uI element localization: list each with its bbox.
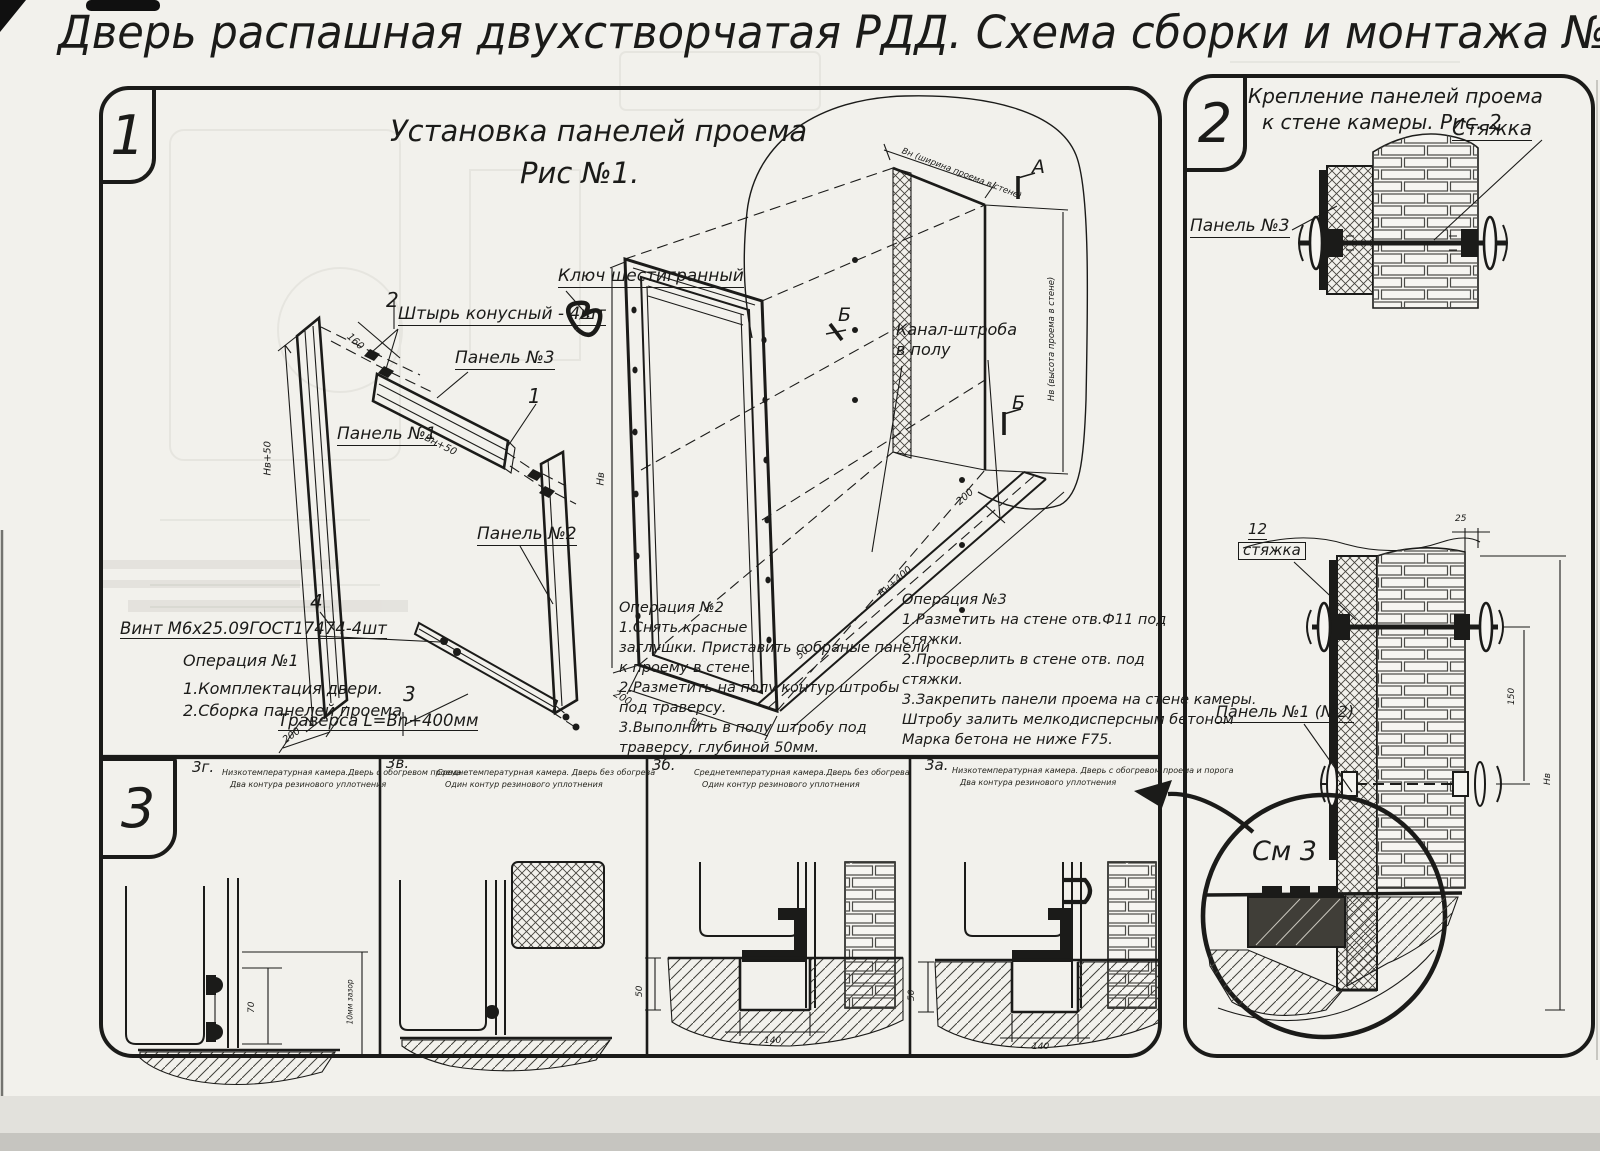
operation-1-block: Операция №1 1.Комплектация двери. 2.Сбор… bbox=[183, 650, 402, 722]
callout-pos12-number: 12 bbox=[1248, 522, 1267, 540]
see-detail-3-label: См 3 bbox=[1252, 838, 1317, 866]
dim-3a-50: 50 bbox=[907, 990, 917, 1001]
op1-line: 1.Комплектация двери. bbox=[183, 678, 402, 700]
op3-line: стяжки. bbox=[902, 630, 1256, 650]
fig1-title-line1: Установка панелей проема bbox=[390, 116, 807, 146]
section-marker-b-frame-label: Б bbox=[838, 306, 851, 326]
fig3-item-desc: Один контур резинового уплотнения bbox=[445, 780, 603, 789]
dim-3b-140: 140 bbox=[764, 1036, 781, 1046]
op1-line: 2.Сборка панелей проема bbox=[183, 700, 402, 722]
fig3-item-id: 3б. bbox=[652, 758, 676, 774]
op3-line: 1.Разметить на стене отв.Ф11 под bbox=[902, 610, 1256, 630]
callout-panel1-2: Панель №1 (№2) bbox=[1216, 704, 1354, 723]
fig3-item-desc: Низкотемпературная камера.Дверь с обогре… bbox=[222, 768, 461, 777]
op3-line: 2.Просверлить в стене отв. под bbox=[902, 650, 1256, 670]
op3-line: Штробу залить мелкодисперсным бетоном bbox=[902, 710, 1256, 730]
fig3-item-desc: Один контур резинового уплотнения bbox=[702, 780, 860, 789]
dim-3b-50: 50 bbox=[635, 986, 645, 997]
dim-3a-140: 140 bbox=[1032, 1042, 1049, 1052]
callout-panel2: Панель №2 bbox=[477, 526, 577, 546]
dim-3g-70: 70 bbox=[247, 1002, 257, 1013]
callout-pos12: стяжка bbox=[1238, 542, 1306, 560]
callout-panel3: Панель №3 bbox=[455, 350, 555, 370]
fig1-badge: 1 bbox=[99, 86, 156, 184]
callout-traverse-number: 3 bbox=[403, 684, 416, 705]
fig3-item-desc: Среднетемпературная камера. Дверь без об… bbox=[437, 768, 655, 777]
scanned-drawing-sheet: 1 2 3 Дверь распашная двухстворчатая РДД… bbox=[0, 0, 1600, 1151]
fig3-item-desc: Два контура резинового уплотнения bbox=[230, 780, 386, 789]
fig2-badge: 2 bbox=[1183, 74, 1247, 172]
fig3-item-id: 3в. bbox=[386, 756, 409, 772]
dim-wall-height: Нв bbox=[1543, 773, 1553, 785]
fig2-title-line1: Крепление панелей проема bbox=[1248, 86, 1543, 107]
callout-hex-key: Ключ шестигранный bbox=[558, 268, 744, 288]
callout-tie: Стяжка bbox=[1452, 118, 1532, 141]
dim-25: 25 bbox=[1455, 514, 1466, 524]
fig3-item-id: 3г. bbox=[192, 760, 214, 776]
callout-pin-number: 2 bbox=[386, 290, 399, 311]
callout-channel-line2: в полу bbox=[896, 342, 950, 359]
fig3-badge: 3 bbox=[99, 757, 177, 859]
op3-line: стяжки. bbox=[902, 670, 1256, 690]
section-marker-b-label: Б bbox=[1012, 394, 1025, 414]
op3-line: 3.Закрепить панели проема на стене камер… bbox=[902, 690, 1256, 710]
fig3-badge-number: 3 bbox=[121, 777, 155, 840]
op3-line: Операция №3 bbox=[902, 590, 1256, 610]
fig3-item-desc: Среднетемпературная камера.Дверь без обо… bbox=[694, 768, 910, 777]
fig2-badge-number: 2 bbox=[1198, 92, 1232, 155]
fig1-title-line2: Рис №1. bbox=[520, 158, 639, 188]
operation-2-block: Операция №2 1.Снять красные заглушки. Пр… bbox=[619, 598, 930, 758]
callout-pin: Штырь конусный - 4шт bbox=[398, 306, 606, 326]
callout-channel-line1: Канал-штроба bbox=[896, 322, 1017, 339]
op2-line: траверсу, глубиной 50мм. bbox=[619, 738, 930, 758]
op2-line: Операция №2 bbox=[619, 598, 930, 618]
op2-line: 3.Выполнить в полу штробу под bbox=[619, 718, 930, 738]
fig3-item-id: 3а. bbox=[925, 758, 949, 774]
operation-3-block: Операция №3 1.Разметить на стене отв.Ф11… bbox=[902, 590, 1256, 750]
dim-frame-height: Нв bbox=[596, 472, 607, 486]
sheet-title: Дверь распашная двухстворчатая РДД. Схем… bbox=[58, 6, 1600, 59]
dim-panel1-height: Нв+50 bbox=[263, 441, 274, 476]
callout-fig2-panel3: Панель №3 bbox=[1190, 218, 1290, 238]
op1-line: Операция №1 bbox=[183, 650, 402, 672]
op2-line: 2.Разметить на полу контур штробы bbox=[619, 678, 930, 698]
callout-panel1: Панель №1 bbox=[337, 426, 437, 446]
fig3-item-desc: Низкотемпературная камера. Дверь с обогр… bbox=[952, 766, 1234, 775]
callout-panel3-number: 1 bbox=[528, 386, 541, 407]
callout-screw: Винт М6х25.09ГОСТ17474-4шт bbox=[120, 620, 387, 639]
section-marker-a-label: А bbox=[1032, 158, 1045, 178]
fig3-item-desc: Два контура резинового уплотнения bbox=[960, 778, 1116, 787]
op2-line: к проему в стене. bbox=[619, 658, 930, 678]
dim-150: 150 bbox=[1507, 688, 1517, 705]
dim-wall-opening-height: Нв (высота проема в стене) bbox=[1047, 277, 1057, 401]
fig1-badge-number: 1 bbox=[110, 104, 144, 167]
dim-3g-gap: 10мм зазор bbox=[346, 979, 355, 1024]
op3-line: Марка бетона не ниже F75. bbox=[902, 730, 1256, 750]
scan-bottom-edge bbox=[0, 1133, 1600, 1151]
op2-line: 1.Снять красные bbox=[619, 618, 930, 638]
scan-top-mark bbox=[86, 0, 160, 11]
fig1-frame bbox=[99, 86, 1162, 1058]
callout-screw-number: 4 bbox=[310, 592, 323, 613]
op2-line: заглушки. Приставить собраные панели bbox=[619, 638, 930, 658]
op2-line: под траверсу. bbox=[619, 698, 930, 718]
